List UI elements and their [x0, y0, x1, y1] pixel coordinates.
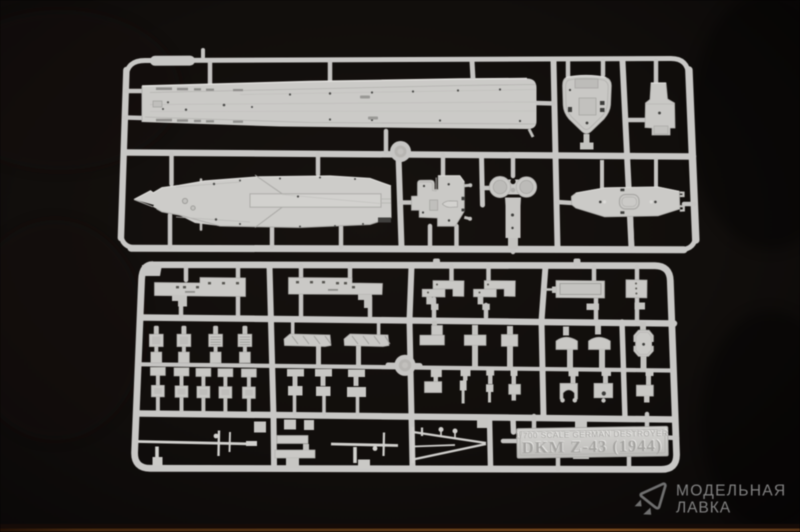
svg-text:DKM Z-43 (1944): DKM Z-43 (1944) — [522, 436, 663, 457]
svg-text:ЛАВКА: ЛАВКА — [676, 500, 731, 517]
svg-text:МОДЕЛЬНАЯ: МОДЕЛЬНАЯ — [676, 483, 786, 500]
